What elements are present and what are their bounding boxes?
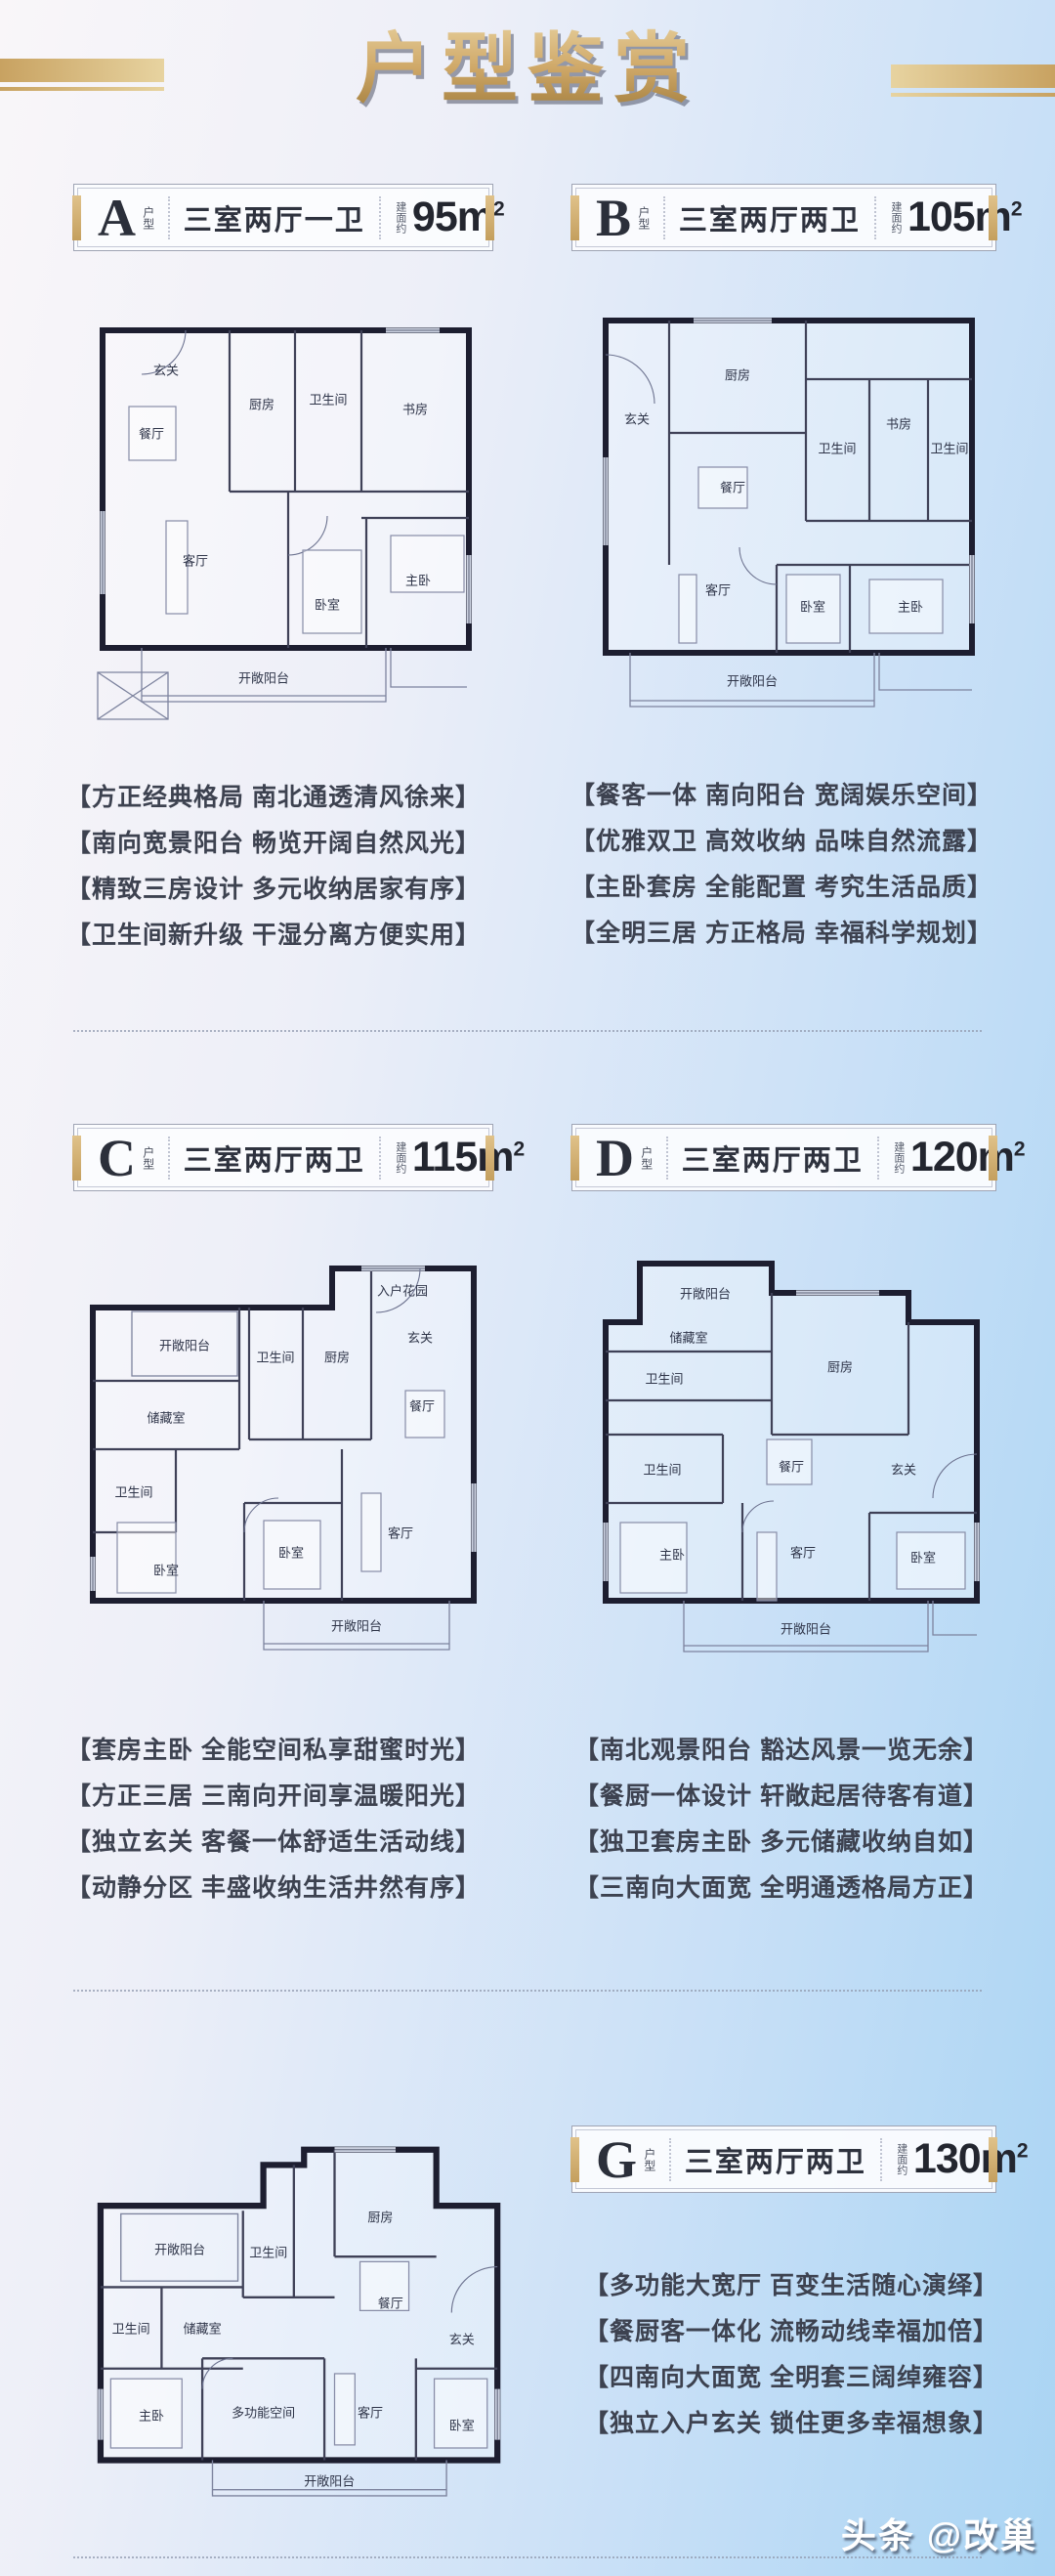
room-label: 开敞阳台 <box>680 1284 731 1303</box>
feature-list-d: 【南北观景阳台 豁达风景一览无余】【餐厨一体设计 轩敞起居待客有道】【独卫套房主… <box>547 1728 1016 1911</box>
room-label: 多功能空间 <box>232 2402 295 2421</box>
room-label: 卧室 <box>910 1548 936 1567</box>
room-label: 入户花园 <box>377 1281 428 1300</box>
room-label: 卫生间 <box>256 1348 294 1366</box>
room-label: 卫生间 <box>818 439 856 457</box>
room-label: 玄关 <box>449 2329 475 2347</box>
dotted-separator <box>168 196 170 239</box>
dotted-separator <box>874 196 876 239</box>
unit-layout-label: 三室两厅两卫 <box>682 1138 864 1179</box>
unit-letter-group: C 户型 <box>98 1132 154 1184</box>
gold-bar-icon <box>570 2137 579 2182</box>
room-label: 玄关 <box>153 361 179 379</box>
feature-item: 【方正经典格局 南北通透清风徐来】 <box>39 775 508 821</box>
gold-bar-icon <box>72 1136 81 1181</box>
feature-item: 【四南向大面宽 全明套三阔绰雍容】 <box>562 2355 1021 2401</box>
room-labels: 开敞阳台储藏室卫生间厨房餐厅卫生间玄关主卧客厅卧室开敞阳台 <box>547 1210 1016 1679</box>
floor-plan-g: 厨房开敞阳台卫生间餐厅储藏室卫生间玄关主卧多功能空间客厅卧室开敞阳台 <box>29 2033 518 2521</box>
room-label: 书房 <box>402 400 428 418</box>
unit-letter: A <box>98 192 136 244</box>
area-prefix-label: 建面约 <box>395 201 406 234</box>
unit-c-header: C 户型 三室两厅两卫 建面约 115m2 <box>73 1124 493 1191</box>
area-prefix-label: 建面约 <box>896 2143 907 2175</box>
feature-item: 【独卫套房主卧 多元储藏收纳自如】 <box>547 1820 1016 1866</box>
room-label: 储藏室 <box>147 1408 185 1427</box>
section-divider <box>73 1990 982 1992</box>
gold-bar-icon <box>570 195 579 240</box>
feature-item: 【全明三居 方正格局 幸福科学规划】 <box>547 911 1016 957</box>
room-label: 开敞阳台 <box>781 1619 831 1638</box>
room-label: 厨房 <box>249 395 274 413</box>
unit-g-header: G 户型 三室两厅两卫 建面约 130m2 <box>571 2125 996 2193</box>
room-label: 主卧 <box>898 597 923 616</box>
room-label: 厨房 <box>725 365 750 384</box>
room-label: 餐厅 <box>720 478 745 496</box>
room-label: 客厅 <box>790 1543 816 1562</box>
feature-list-a: 【方正经典格局 南北通透清风徐来】【南向宽景阳台 畅览开阔自然风光】【精致三房设… <box>39 775 508 959</box>
feature-item: 【精致三房设计 多元收纳居家有序】 <box>39 867 508 913</box>
gold-bar-icon <box>485 1136 494 1181</box>
unit-letter-group: A 户型 <box>98 192 154 244</box>
unit-letter: D <box>596 1132 634 1184</box>
dotted-separator <box>666 1137 668 1180</box>
feature-item: 【餐厨一体设计 轩敞起居待客有道】 <box>547 1774 1016 1820</box>
unit-layout-label: 三室两厅两卫 <box>679 197 861 238</box>
feature-item: 【套房主卧 全能空间私享甜蜜时光】 <box>39 1728 508 1774</box>
floor-plan-d: 开敞阳台储藏室卫生间厨房餐厅卫生间玄关主卧客厅卧室开敞阳台 <box>547 1210 1016 1679</box>
feature-item: 【餐客一体 南向阳台 宽阔娱乐空间】 <box>547 773 1016 819</box>
room-label: 客厅 <box>183 551 208 570</box>
unit-type-label: 户型 <box>141 1146 154 1170</box>
unit-a-header: A 户型 三室两厅一卫 建面约 95m2 <box>73 184 493 251</box>
page-title: 户型鉴赏 <box>0 8 1055 117</box>
room-label: 客厅 <box>388 1524 413 1542</box>
room-label: 主卧 <box>139 2405 164 2424</box>
unit-letter: C <box>98 1132 136 1184</box>
room-label: 卫生间 <box>930 439 968 457</box>
room-label: 储藏室 <box>184 2319 222 2338</box>
watermark: 头条 @改巢 <box>841 2508 1037 2558</box>
feature-item: 【动静分区 丰盛收纳生活井然有序】 <box>39 1866 508 1911</box>
unit-b-header: B 户型 三室两厅两卫 建面约 105m2 <box>571 184 996 251</box>
area-prefix-label: 建面约 <box>893 1141 905 1174</box>
room-label: 开敞阳台 <box>154 2239 205 2257</box>
room-label: 客厅 <box>358 2402 383 2421</box>
feature-item: 【多功能大宽厅 百变生活随心演绎】 <box>562 2263 1021 2309</box>
area-value: 105m2 <box>907 193 1022 241</box>
feature-item: 【卫生间新升级 干湿分离方便实用】 <box>39 913 508 959</box>
room-label: 厨房 <box>367 2207 393 2225</box>
room-label: 卫生间 <box>112 2319 150 2338</box>
feature-list-c: 【套房主卧 全能空间私享甜蜜时光】【方正三居 三南向开间享温暖阳光】【独立玄关 … <box>39 1728 508 1911</box>
unit-letter: B <box>596 192 631 244</box>
room-label: 卧室 <box>315 595 340 614</box>
room-label: 书房 <box>886 414 911 433</box>
room-label: 卫生间 <box>114 1482 152 1501</box>
floor-plan-c: 入户花园玄关开敞阳台卫生间厨房储藏室餐厅卫生间卧室客厅卧室开敞阳台 <box>39 1210 508 1679</box>
unit-layout-label: 三室两厅一卫 <box>184 197 365 238</box>
section-divider <box>73 1030 982 1032</box>
room-labels: 玄关厨房卫生间书房餐厅客厅卧室主卧开敞阳台 <box>39 262 508 731</box>
room-label: 开敞阳台 <box>304 2471 355 2490</box>
floor-plan-b: 玄关厨房卫生间书房卫生间餐厅客厅卧室主卧开敞阳台 <box>547 262 1016 731</box>
room-label: 卧室 <box>449 2416 475 2434</box>
room-labels: 入户花园玄关开敞阳台卫生间厨房储藏室餐厅卫生间卧室客厅卧室开敞阳台 <box>39 1210 508 1679</box>
unit-type-label: 户型 <box>636 206 650 230</box>
room-label: 卫生间 <box>309 390 347 408</box>
gold-bar-icon <box>485 195 494 240</box>
room-label: 玄关 <box>624 408 650 427</box>
room-label: 储藏室 <box>669 1328 707 1347</box>
feature-item: 【独立玄关 客餐一体舒适生活动线】 <box>39 1820 508 1866</box>
gold-bar-icon <box>72 195 81 240</box>
unit-area-group: 建面约 120m2 <box>893 1134 1025 1181</box>
feature-item: 【方正三居 三南向开间享温暖阳光】 <box>39 1774 508 1820</box>
room-labels: 厨房开敞阳台卫生间餐厅储藏室卫生间玄关主卧多功能空间客厅卧室开敞阳台 <box>29 2033 518 2521</box>
dotted-separator <box>663 196 665 239</box>
dotted-separator <box>880 2138 882 2181</box>
room-label: 玄关 <box>891 1460 916 1479</box>
feature-item: 【优雅双卫 高效收纳 品味自然流露】 <box>547 819 1016 865</box>
unit-letter: G <box>596 2133 637 2186</box>
unit-letter-group: D 户型 <box>596 1132 653 1184</box>
room-label: 开敞阳台 <box>331 1616 382 1635</box>
feature-list-g: 【多功能大宽厅 百变生活随心演绎】【餐厨客一体化 流畅动线幸福加倍】【四南向大面… <box>562 2263 1021 2447</box>
room-label: 卫生间 <box>643 1460 681 1479</box>
room-label: 餐厅 <box>378 2294 403 2312</box>
room-label: 卫生间 <box>645 1369 683 1388</box>
feature-item: 【主卧套房 全能配置 考究生活品质】 <box>547 865 1016 911</box>
room-label: 客厅 <box>705 580 731 599</box>
dotted-separator <box>379 196 381 239</box>
gold-bar-icon <box>989 195 997 240</box>
unit-area-group: 建面约 105m2 <box>890 193 1022 241</box>
dotted-separator <box>877 1137 879 1180</box>
room-label: 卧室 <box>800 597 825 616</box>
room-label: 餐厅 <box>409 1396 435 1415</box>
area-value: 130m2 <box>913 2135 1028 2183</box>
unit-type-label: 户型 <box>141 206 154 230</box>
dotted-separator <box>379 1137 381 1180</box>
unit-layout-label: 三室两厅两卫 <box>184 1138 365 1179</box>
room-label: 卧室 <box>153 1561 179 1579</box>
unit-type-label: 户型 <box>639 1146 653 1170</box>
unit-type-label: 户型 <box>642 2148 655 2171</box>
page: 户型鉴赏 A 户型 三室两厅一卫 建面约 95m2 B 户型 <box>0 0 1055 2576</box>
feature-item: 【三南向大面宽 全明通透格局方正】 <box>547 1866 1016 1911</box>
room-label: 卧室 <box>278 1543 304 1562</box>
room-label: 主卧 <box>405 571 431 589</box>
area-prefix-label: 建面约 <box>395 1141 406 1174</box>
room-label: 玄关 <box>407 1328 433 1347</box>
room-label: 厨房 <box>827 1356 853 1375</box>
floor-plan-a: 玄关厨房卫生间书房餐厅客厅卧室主卧开敞阳台 <box>39 262 508 731</box>
dotted-separator <box>168 1137 170 1180</box>
room-label: 厨房 <box>324 1348 350 1366</box>
room-label: 卫生间 <box>249 2242 287 2260</box>
feature-list-b: 【餐客一体 南向阳台 宽阔娱乐空间】【优雅双卫 高效收纳 品味自然流露】【主卧套… <box>547 773 1016 957</box>
room-label: 开敞阳台 <box>159 1336 210 1354</box>
feature-item: 【南北观景阳台 豁达风景一览无余】 <box>547 1728 1016 1774</box>
gold-bar-icon <box>570 1136 579 1181</box>
area-prefix-label: 建面约 <box>890 201 902 234</box>
dotted-separator <box>669 2138 671 2181</box>
unit-d-header: D 户型 三室两厅两卫 建面约 120m2 <box>571 1124 996 1191</box>
unit-area-group: 建面约 115m2 <box>395 1134 524 1181</box>
area-value: 115m2 <box>412 1134 524 1181</box>
feature-item: 【南向宽景阳台 畅览开阔自然风光】 <box>39 821 508 867</box>
room-label: 开敞阳台 <box>238 668 289 687</box>
unit-layout-label: 三室两厅两卫 <box>685 2139 866 2180</box>
gold-bar-icon <box>989 2137 997 2182</box>
gold-bar-icon <box>989 1136 997 1181</box>
feature-item: 【独立入户玄关 锁住更多幸福想象】 <box>562 2401 1021 2447</box>
room-labels: 玄关厨房卫生间书房卫生间餐厅客厅卧室主卧开敞阳台 <box>547 262 1016 731</box>
room-label: 主卧 <box>659 1545 685 1564</box>
unit-letter-group: B 户型 <box>596 192 650 244</box>
feature-item: 【餐厨客一体化 流畅动线幸福加倍】 <box>562 2309 1021 2355</box>
unit-letter-group: G 户型 <box>596 2133 655 2186</box>
room-label: 餐厅 <box>139 424 164 443</box>
room-label: 餐厅 <box>779 1457 804 1476</box>
room-label: 开敞阳台 <box>727 671 778 690</box>
area-value: 120m2 <box>910 1134 1025 1181</box>
unit-area-group: 建面约 130m2 <box>896 2135 1028 2183</box>
